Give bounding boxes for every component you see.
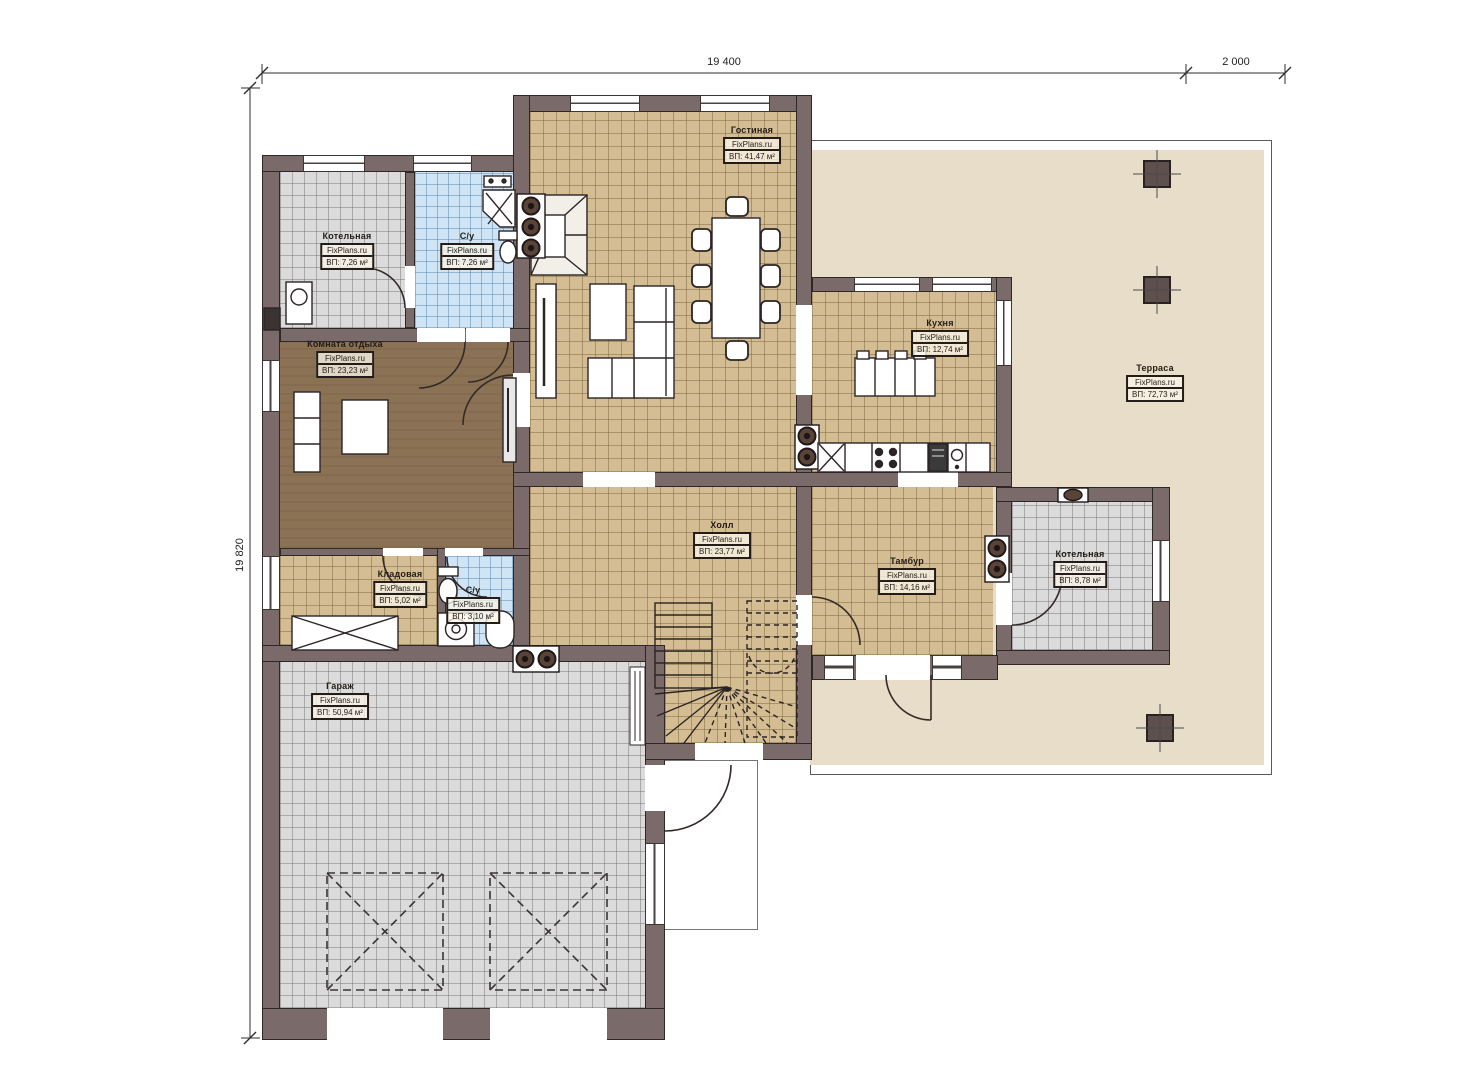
window <box>262 360 280 412</box>
door-opening <box>383 548 423 556</box>
window <box>1152 540 1170 602</box>
wall <box>996 487 1170 502</box>
room-label-living-room: Гостиная FixPlans.ru ВП: 41,47 м² <box>723 125 781 164</box>
room-name: Кухня <box>911 318 969 328</box>
room-brand: FixPlans.ru <box>442 245 492 257</box>
room-area: ВП: 14,16 м² <box>880 582 934 593</box>
door-opening <box>856 655 930 680</box>
room-name: Комната отдыха <box>307 339 383 349</box>
room-label-bathroom-bottom: С/у FixPlans.ru ВП: 3,10 м² <box>446 585 500 624</box>
room-name: Котельная <box>1053 549 1107 559</box>
room-area: ВП: 7,26 м² <box>442 257 492 268</box>
window <box>413 155 472 172</box>
entrance-porch <box>663 760 758 930</box>
door-opening <box>695 743 763 760</box>
window <box>932 277 992 292</box>
floor-plan: 19 400 2 000 19 820 Гостиная FixPlans.ru… <box>0 0 1473 1080</box>
room-brand: FixPlans.ru <box>1128 377 1182 389</box>
room-brand: FixPlans.ru <box>313 695 367 707</box>
room-name: Кладовая <box>373 569 427 579</box>
dimension-top-width: 19 400 <box>707 56 741 68</box>
floor-hall-lower <box>665 650 796 743</box>
room-brand: FixPlans.ru <box>322 245 372 257</box>
wall <box>796 95 812 760</box>
door-opening <box>583 472 655 487</box>
room-label-garage: Гараж FixPlans.ru ВП: 50,94 м² <box>311 681 369 720</box>
room-name: Гостиная <box>723 125 781 135</box>
room-brand: FixPlans.ru <box>1055 563 1105 575</box>
door-opening <box>405 266 415 308</box>
room-name: Терраса <box>1126 363 1184 373</box>
room-name: Котельная <box>320 231 374 241</box>
window <box>854 277 920 292</box>
room-area: ВП: 3,10 м² <box>448 611 498 622</box>
room-name: С/у <box>446 585 500 595</box>
door-opening <box>513 373 530 427</box>
door-opening <box>645 765 665 811</box>
garage-door-opening <box>490 1008 607 1040</box>
terrace-post <box>1143 160 1171 188</box>
window <box>303 155 365 172</box>
door-opening <box>796 595 812 645</box>
room-name: Холл <box>693 520 751 530</box>
room-brand: FixPlans.ru <box>318 353 372 365</box>
window <box>262 556 280 610</box>
room-label-boiler-right: Котельная FixPlans.ru ВП: 8,78 м² <box>1053 549 1107 588</box>
room-area: ВП: 41,47 м² <box>725 151 779 162</box>
room-brand: FixPlans.ru <box>695 534 749 546</box>
wall <box>996 650 1170 665</box>
door-opening <box>445 548 483 556</box>
window <box>645 843 665 925</box>
room-area: ВП: 7,26 м² <box>322 257 372 268</box>
door-opening <box>996 573 1012 625</box>
room-area: ВП: 5,02 м² <box>375 595 425 606</box>
door-opening <box>466 328 510 342</box>
room-area: ВП: 23,23 м² <box>318 365 372 376</box>
room-label-terrace: Терраса FixPlans.ru ВП: 72,73 м² <box>1126 363 1184 402</box>
room-label-bathroom-top: С/у FixPlans.ru ВП: 7,26 м² <box>440 231 494 270</box>
dimension-top-right-width: 2 000 <box>1222 56 1250 68</box>
terrace-post <box>1143 276 1171 304</box>
door-opening <box>796 305 812 395</box>
room-name: С/у <box>440 231 494 241</box>
room-label-boiler-left: Котельная FixPlans.ru ВП: 7,26 м² <box>320 231 374 270</box>
room-brand: FixPlans.ru <box>725 139 779 151</box>
window <box>996 300 1012 366</box>
room-brand: FixPlans.ru <box>913 332 967 344</box>
room-name: Гараж <box>311 681 369 691</box>
window <box>824 655 854 680</box>
garage-door-opening <box>327 1008 443 1040</box>
window <box>932 655 962 680</box>
room-name: Тамбур <box>878 556 936 566</box>
door-opening <box>898 472 958 487</box>
room-label-vestibule: Тамбур FixPlans.ru ВП: 14,16 м² <box>878 556 936 595</box>
floor-hall-upper <box>530 487 796 650</box>
room-label-storage: Кладовая FixPlans.ru ВП: 5,02 м² <box>373 569 427 608</box>
room-area: ВП: 23,77 м² <box>695 546 749 557</box>
wall <box>437 548 446 648</box>
room-label-hall: Холл FixPlans.ru ВП: 23,77 м² <box>693 520 751 559</box>
room-area: ВП: 72,73 м² <box>1128 389 1182 400</box>
window <box>700 95 770 112</box>
window <box>570 95 640 112</box>
wall <box>262 645 665 662</box>
room-brand: FixPlans.ru <box>448 599 498 611</box>
room-area: ВП: 8,78 м² <box>1055 575 1105 586</box>
dimension-left-height: 19 820 <box>234 538 246 572</box>
door-opening <box>417 328 465 342</box>
room-label-rest-room: Комната отдыха FixPlans.ru ВП: 23,23 м² <box>307 339 383 378</box>
room-area: ВП: 50,94 м² <box>313 707 367 718</box>
room-brand: FixPlans.ru <box>880 570 934 582</box>
room-area: ВП: 12,74 м² <box>913 344 967 355</box>
room-brand: FixPlans.ru <box>375 583 425 595</box>
terrace-post <box>1146 714 1174 742</box>
floor-living-room <box>530 112 796 472</box>
room-label-kitchen: Кухня FixPlans.ru ВП: 12,74 м² <box>911 318 969 357</box>
